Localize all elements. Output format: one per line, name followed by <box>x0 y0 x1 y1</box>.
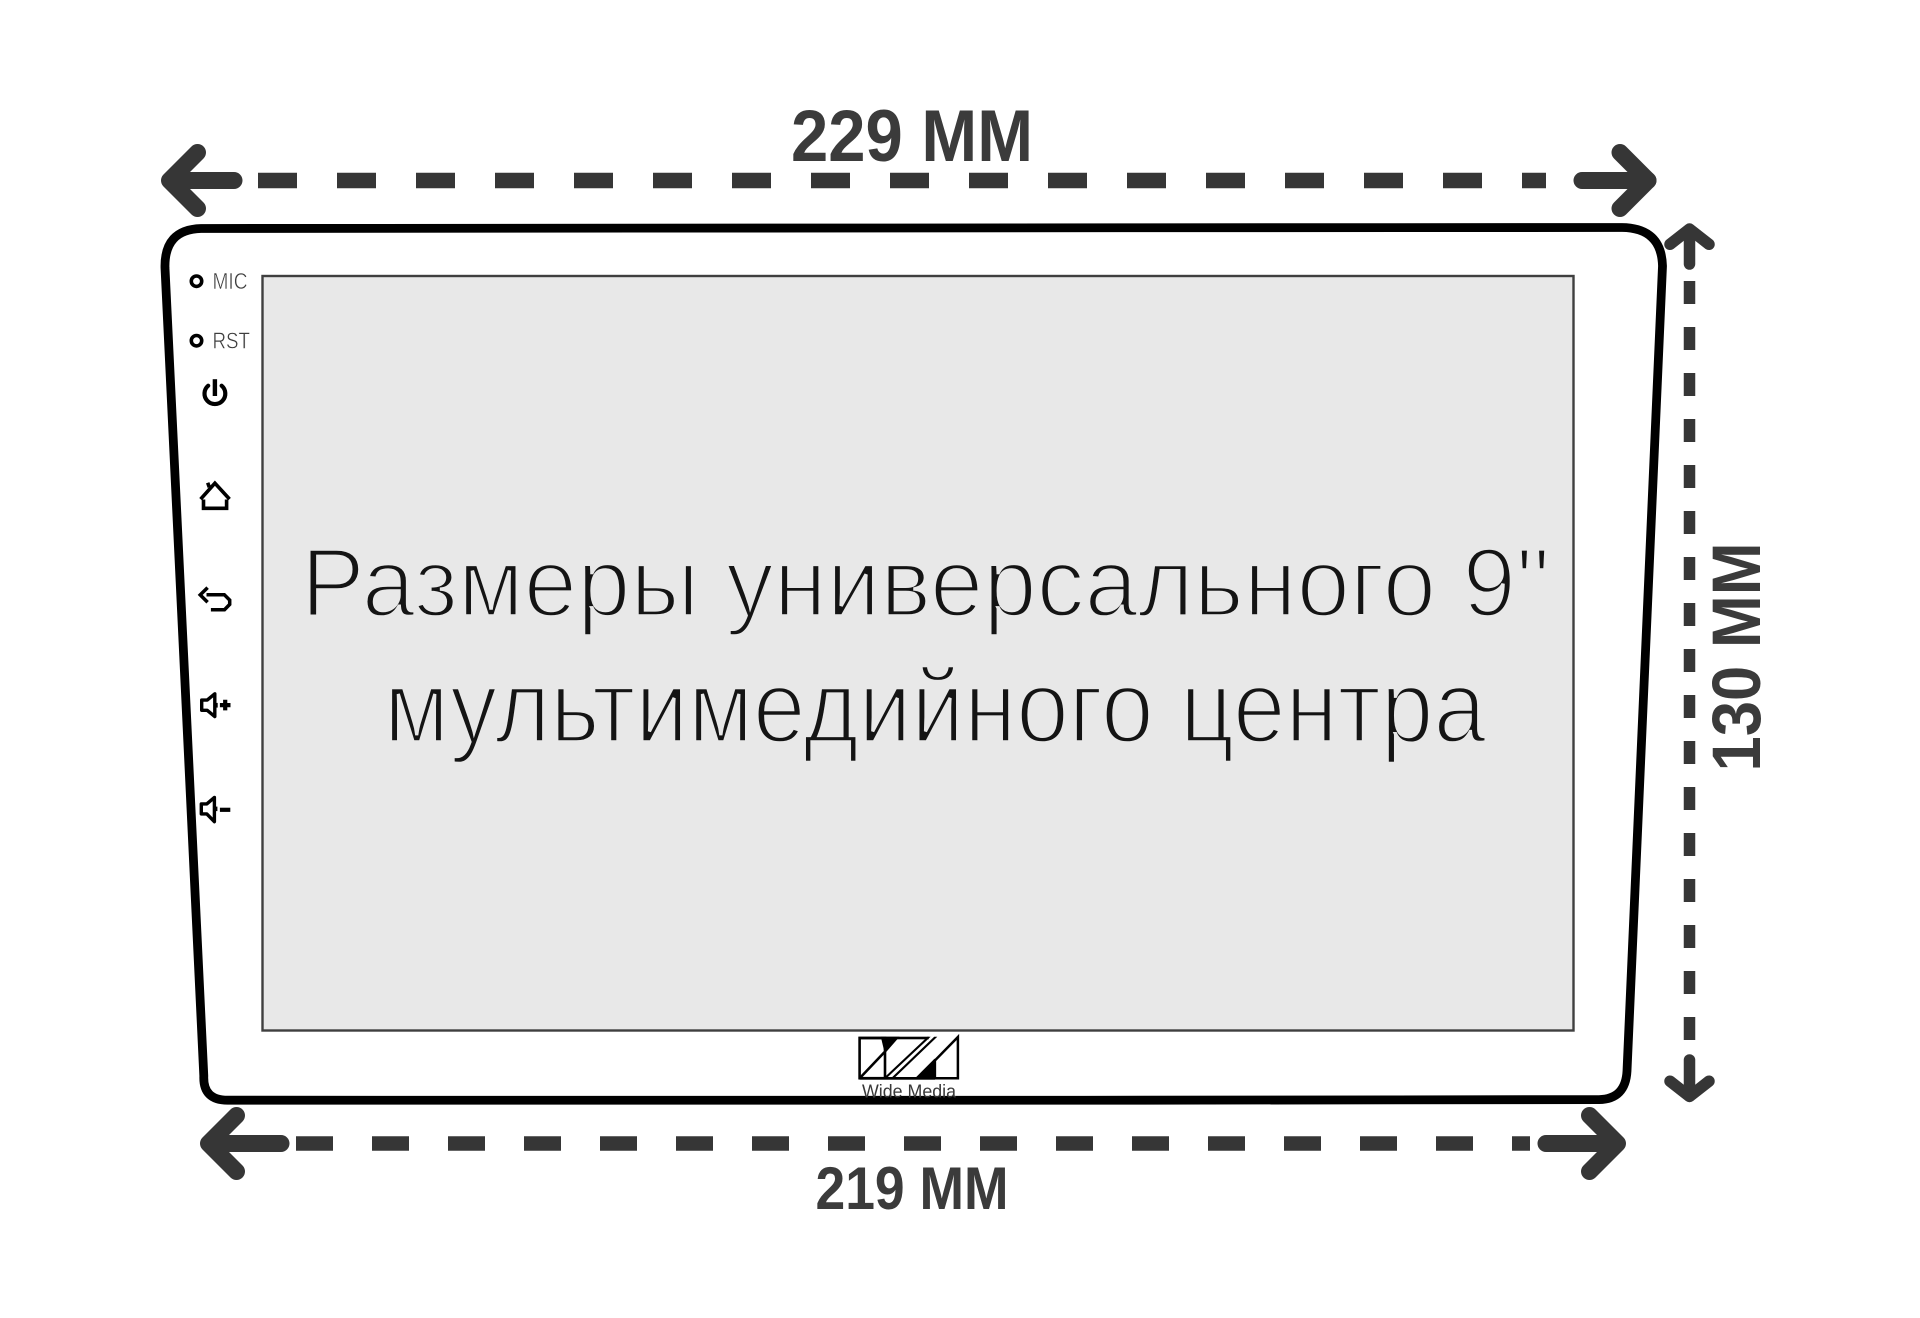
svg-text:RST: RST <box>213 328 251 354</box>
svg-text:229 MM: 229 MM <box>791 96 1033 177</box>
svg-text:Размеры универсального 9": Размеры универсального 9" <box>301 528 1550 637</box>
svg-text:MIC: MIC <box>213 268 248 294</box>
svg-text:219 MM: 219 MM <box>816 1155 1009 1222</box>
svg-text:Wide Media: Wide Media <box>862 1082 957 1102</box>
svg-text:130 MM: 130 MM <box>1698 543 1775 772</box>
svg-text:мультимедийного центра: мультимедийного центра <box>384 649 1487 764</box>
